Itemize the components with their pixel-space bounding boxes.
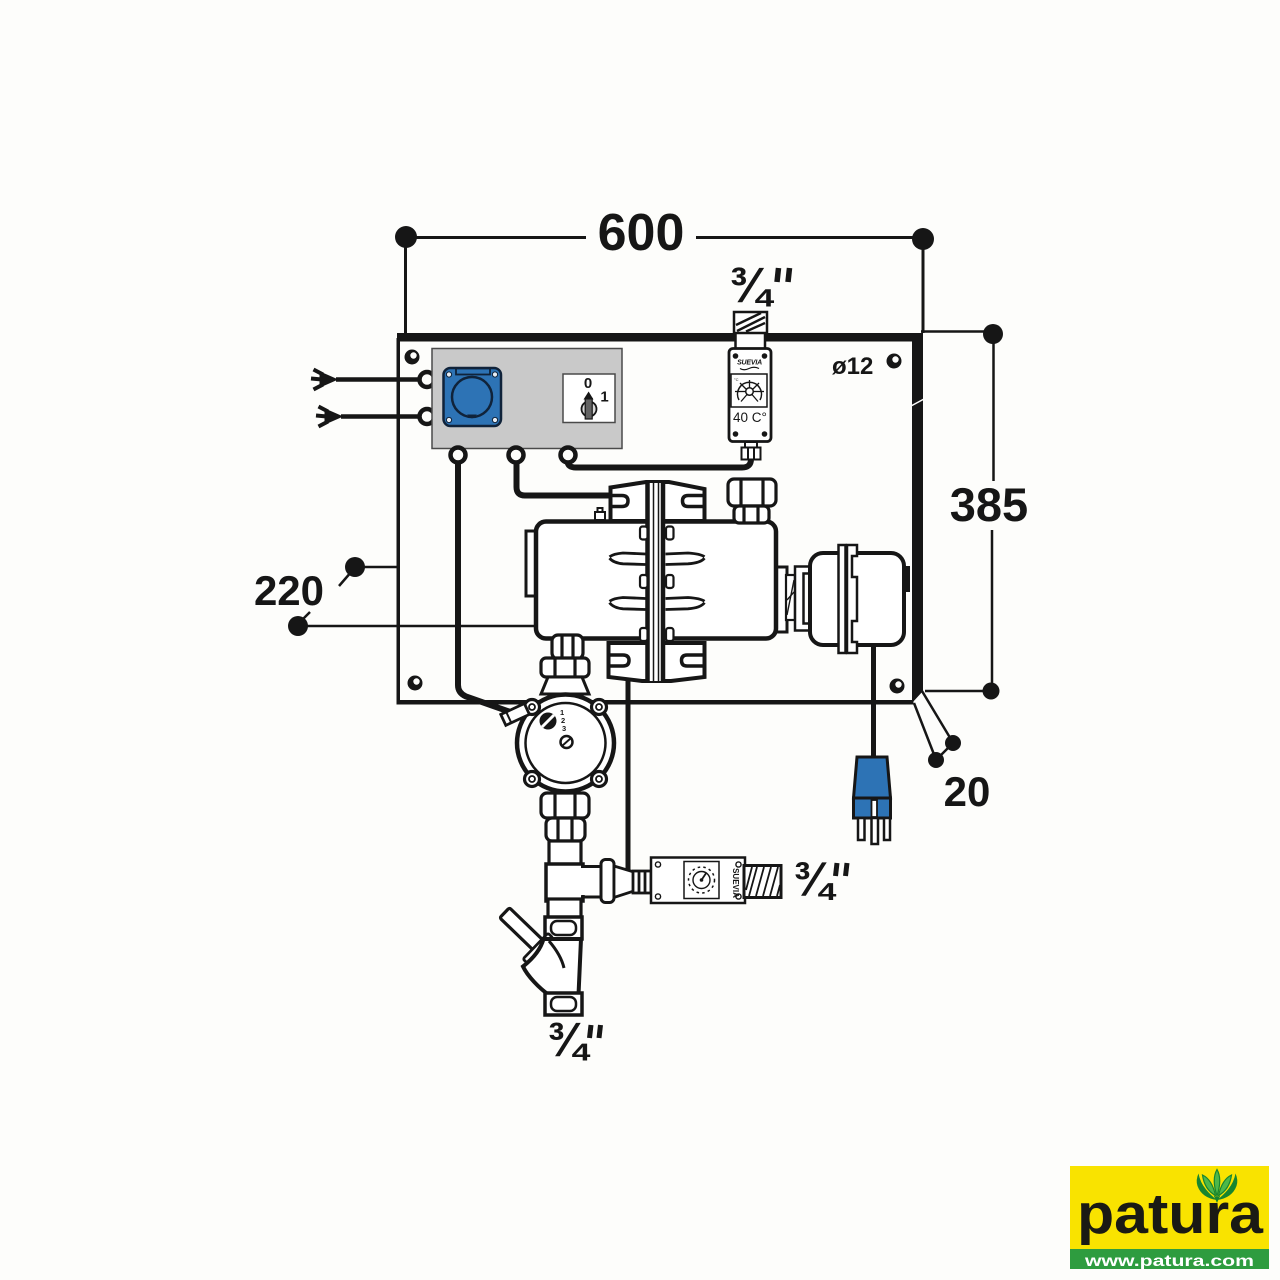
svg-text:600: 600: [598, 204, 685, 262]
svg-text:SUEVIA: SUEVIA: [737, 360, 762, 367]
svg-text:220: 220: [254, 567, 324, 614]
svg-text:www.patura.com: www.patura.com: [1084, 1253, 1254, 1270]
svg-text:385: 385: [950, 478, 1028, 531]
svg-text:ø12: ø12: [832, 353, 873, 380]
svg-text:3: 3: [562, 724, 566, 733]
svg-text:1: 1: [600, 389, 608, 406]
svg-text:¾: ¾: [793, 854, 837, 907]
svg-text:0: 0: [584, 375, 592, 392]
svg-text:°C: °C: [734, 377, 739, 382]
svg-text:¾: ¾: [729, 257, 775, 313]
svg-text:20: 20: [944, 768, 991, 815]
svg-text:40 C°: 40 C°: [733, 410, 767, 425]
svg-text:¾: ¾: [547, 1014, 591, 1067]
svg-text:patura: patura: [1077, 1182, 1264, 1246]
svg-text:SUEVIA: SUEVIA: [731, 868, 740, 898]
